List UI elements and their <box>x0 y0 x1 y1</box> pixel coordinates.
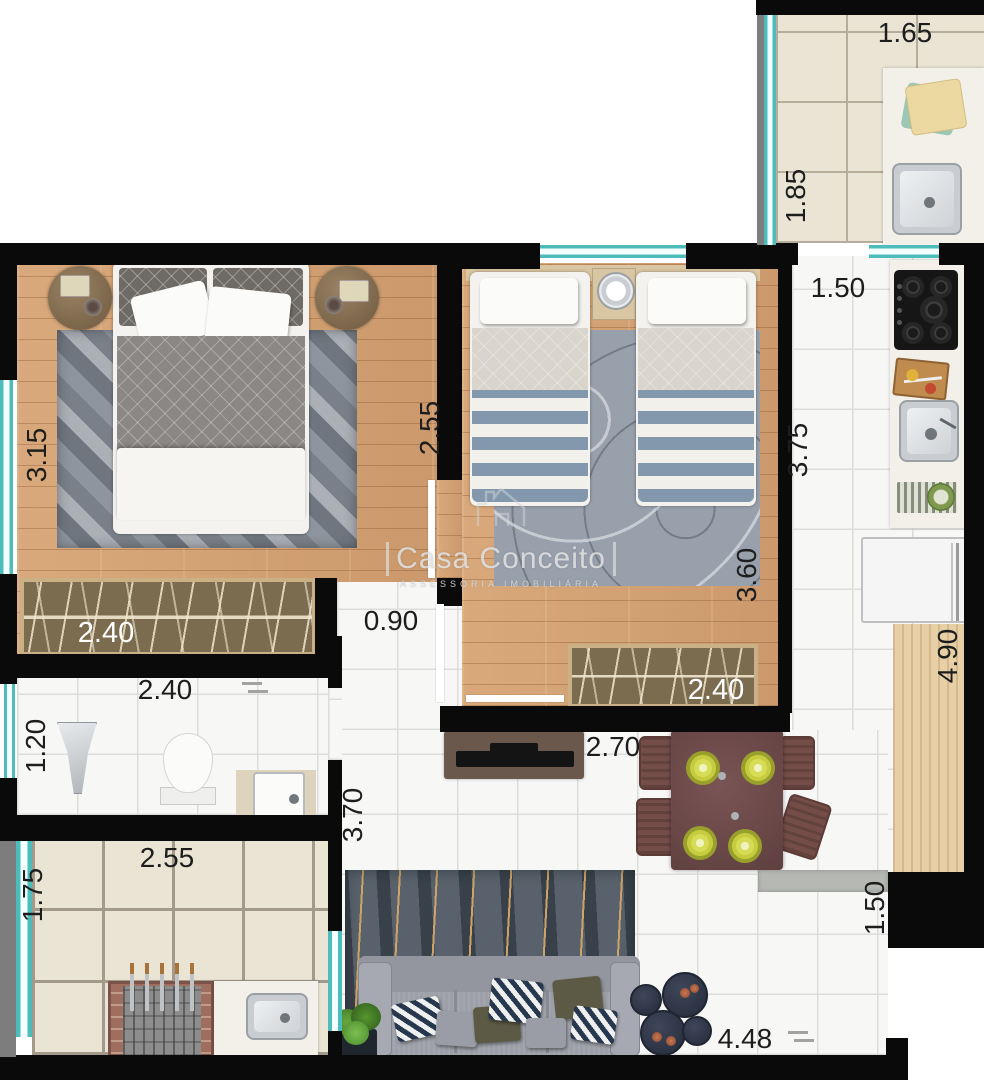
tv-base-icon <box>490 743 538 753</box>
tv-icon <box>456 751 574 767</box>
bedroom2-door-icon <box>436 604 444 702</box>
master-wardrobe-icon <box>20 578 316 656</box>
wall-top-service <box>756 0 984 15</box>
towel-stack-icon <box>898 78 968 142</box>
pillow-icon <box>480 278 578 324</box>
kitchen-sink-icon <box>899 400 959 462</box>
dim-service-width: 1.65 <box>865 18 945 48</box>
door-swing-icon <box>786 1030 812 1046</box>
burner-icon <box>902 276 924 298</box>
toilet-bowl <box>163 733 213 793</box>
dim-master-width: 2.55 <box>415 383 445 473</box>
wall-bath-right-top <box>328 636 342 688</box>
coffee-table-set-icon <box>630 970 714 1058</box>
burner-icon <box>902 322 924 344</box>
pillow-icon <box>570 1005 618 1045</box>
dim-living-tv-wall: 2.70 <box>573 732 653 762</box>
mug-icon <box>84 298 102 316</box>
cutting-board-icon <box>892 357 950 400</box>
laundry-sink-icon <box>892 163 962 235</box>
decor-icon <box>652 1032 662 1042</box>
balcony-living-window-icon <box>328 931 342 1031</box>
decor-icon <box>666 1036 676 1046</box>
service-window-frame <box>757 15 764 245</box>
burner-icon <box>930 322 952 344</box>
dim-living-entry: 1.50 <box>860 863 890 953</box>
fridge-handle-icon <box>956 543 959 621</box>
tv-stand-icon <box>444 731 584 779</box>
wall-bedroom2-bottom <box>440 706 790 732</box>
skewer-icon <box>190 963 194 1011</box>
skewer-icon <box>175 963 179 1011</box>
knob-icon <box>897 308 902 313</box>
pillow-icon <box>648 278 746 324</box>
twin-bed-icon <box>470 272 590 506</box>
bathroom-window-icon <box>4 684 15 778</box>
dim-bathroom-width: 2.40 <box>125 675 205 705</box>
master-door-icon <box>428 480 435 578</box>
dim-kitchen-depth: 3.75 <box>783 405 813 495</box>
cooktop-icon <box>894 270 958 350</box>
striped-duvet-icon <box>472 390 588 502</box>
leaf-icon <box>343 1021 369 1045</box>
wall-left-top <box>0 243 17 380</box>
wall-master-right-mid <box>437 578 462 606</box>
decor-icon <box>690 984 699 993</box>
master-door-floor <box>437 478 462 578</box>
faucet-icon <box>925 428 937 440</box>
skewer-icon <box>130 963 134 1011</box>
dining-table-icon <box>671 730 783 870</box>
nightstand-icon <box>315 266 379 330</box>
dim-bedroom2-depth: 3.60 <box>732 530 762 620</box>
dim-hall-width: 0.90 <box>351 606 431 636</box>
bedroom2-door-threshold <box>466 695 564 702</box>
dim-living-depth: 3.70 <box>338 770 368 860</box>
knob-icon <box>897 296 902 301</box>
nightstand-icon <box>48 266 112 330</box>
burner-icon <box>930 276 952 298</box>
bedroom2-window-icon <box>540 245 686 258</box>
fridge-handle-icon <box>951 543 953 621</box>
salt-shaker-icon <box>731 812 739 820</box>
plate-icon <box>686 751 720 785</box>
dim-balcony-width: 2.55 <box>127 843 207 873</box>
plate-icon <box>728 829 762 863</box>
salt-shaker-icon <box>718 772 726 780</box>
dim-bathroom-depth: 1.20 <box>21 701 51 791</box>
sink-basin <box>254 1001 300 1032</box>
vegetable-icon <box>925 383 937 395</box>
faucet-icon <box>280 1013 290 1023</box>
duvet-icon <box>117 336 305 458</box>
service-kitchen-window-icon <box>869 245 939 258</box>
plate-icon <box>927 483 955 511</box>
service-window-icon <box>764 15 776 245</box>
plate-icon <box>741 751 775 785</box>
skewer-icon <box>160 963 164 1011</box>
towel-icon <box>904 78 967 136</box>
pillow-icon <box>526 1018 566 1048</box>
skewer-icon <box>145 963 149 1011</box>
wall-corner-block <box>888 872 984 948</box>
sofa-icon <box>358 956 640 1057</box>
dish-rack-icon <box>897 482 957 513</box>
blanket-icon <box>117 448 305 520</box>
master-window-icon <box>0 380 13 574</box>
clock-icon <box>597 272 635 310</box>
double-bed-icon <box>113 262 309 534</box>
burner-icon <box>920 296 948 324</box>
dim-master-depth: 3.15 <box>22 410 52 500</box>
chair-icon <box>636 798 676 856</box>
duvet-icon <box>638 328 754 390</box>
decor-icon <box>680 988 690 998</box>
floor-plan: 1.65 1.85 1.50 3.75 4.90 3.15 2.55 2.40 … <box>0 0 984 1080</box>
book-icon <box>60 275 90 297</box>
duvet-icon <box>472 328 588 390</box>
dim-counter-length: 4.90 <box>933 611 963 701</box>
wall-bottom <box>0 1055 908 1080</box>
wall-top-master <box>0 243 440 265</box>
faucet-icon <box>289 794 299 804</box>
dim-service-depth: 1.85 <box>781 151 811 241</box>
plate-icon <box>683 826 717 860</box>
knob-icon <box>897 284 902 289</box>
dim-bedroom2-wardrobe: 2.40 <box>676 674 756 706</box>
toilet-icon <box>158 733 218 805</box>
bathroom-door-floor <box>328 688 342 760</box>
dim-living-width: 4.48 <box>705 1024 785 1054</box>
dim-master-wardrobe: 2.40 <box>66 617 146 649</box>
faucet-icon <box>924 197 935 208</box>
twin-bed-icon <box>636 272 756 506</box>
knob-icon <box>897 320 902 325</box>
balcony-sink-icon <box>246 993 308 1040</box>
book-icon <box>339 280 369 302</box>
bathroom-sink-icon <box>253 772 305 818</box>
dim-kitchen-width: 1.50 <box>798 273 878 303</box>
dim-balcony-depth: 1.75 <box>18 850 48 940</box>
coffee-table-icon <box>640 1010 686 1056</box>
chair-icon <box>779 736 815 790</box>
wall-right <box>964 243 984 890</box>
balcony-window-frame <box>0 841 16 1057</box>
striped-duvet-icon <box>638 390 754 502</box>
wall-bath-bottom <box>0 815 342 841</box>
door-swing-icon <box>240 681 266 697</box>
mug-icon <box>325 296 343 314</box>
